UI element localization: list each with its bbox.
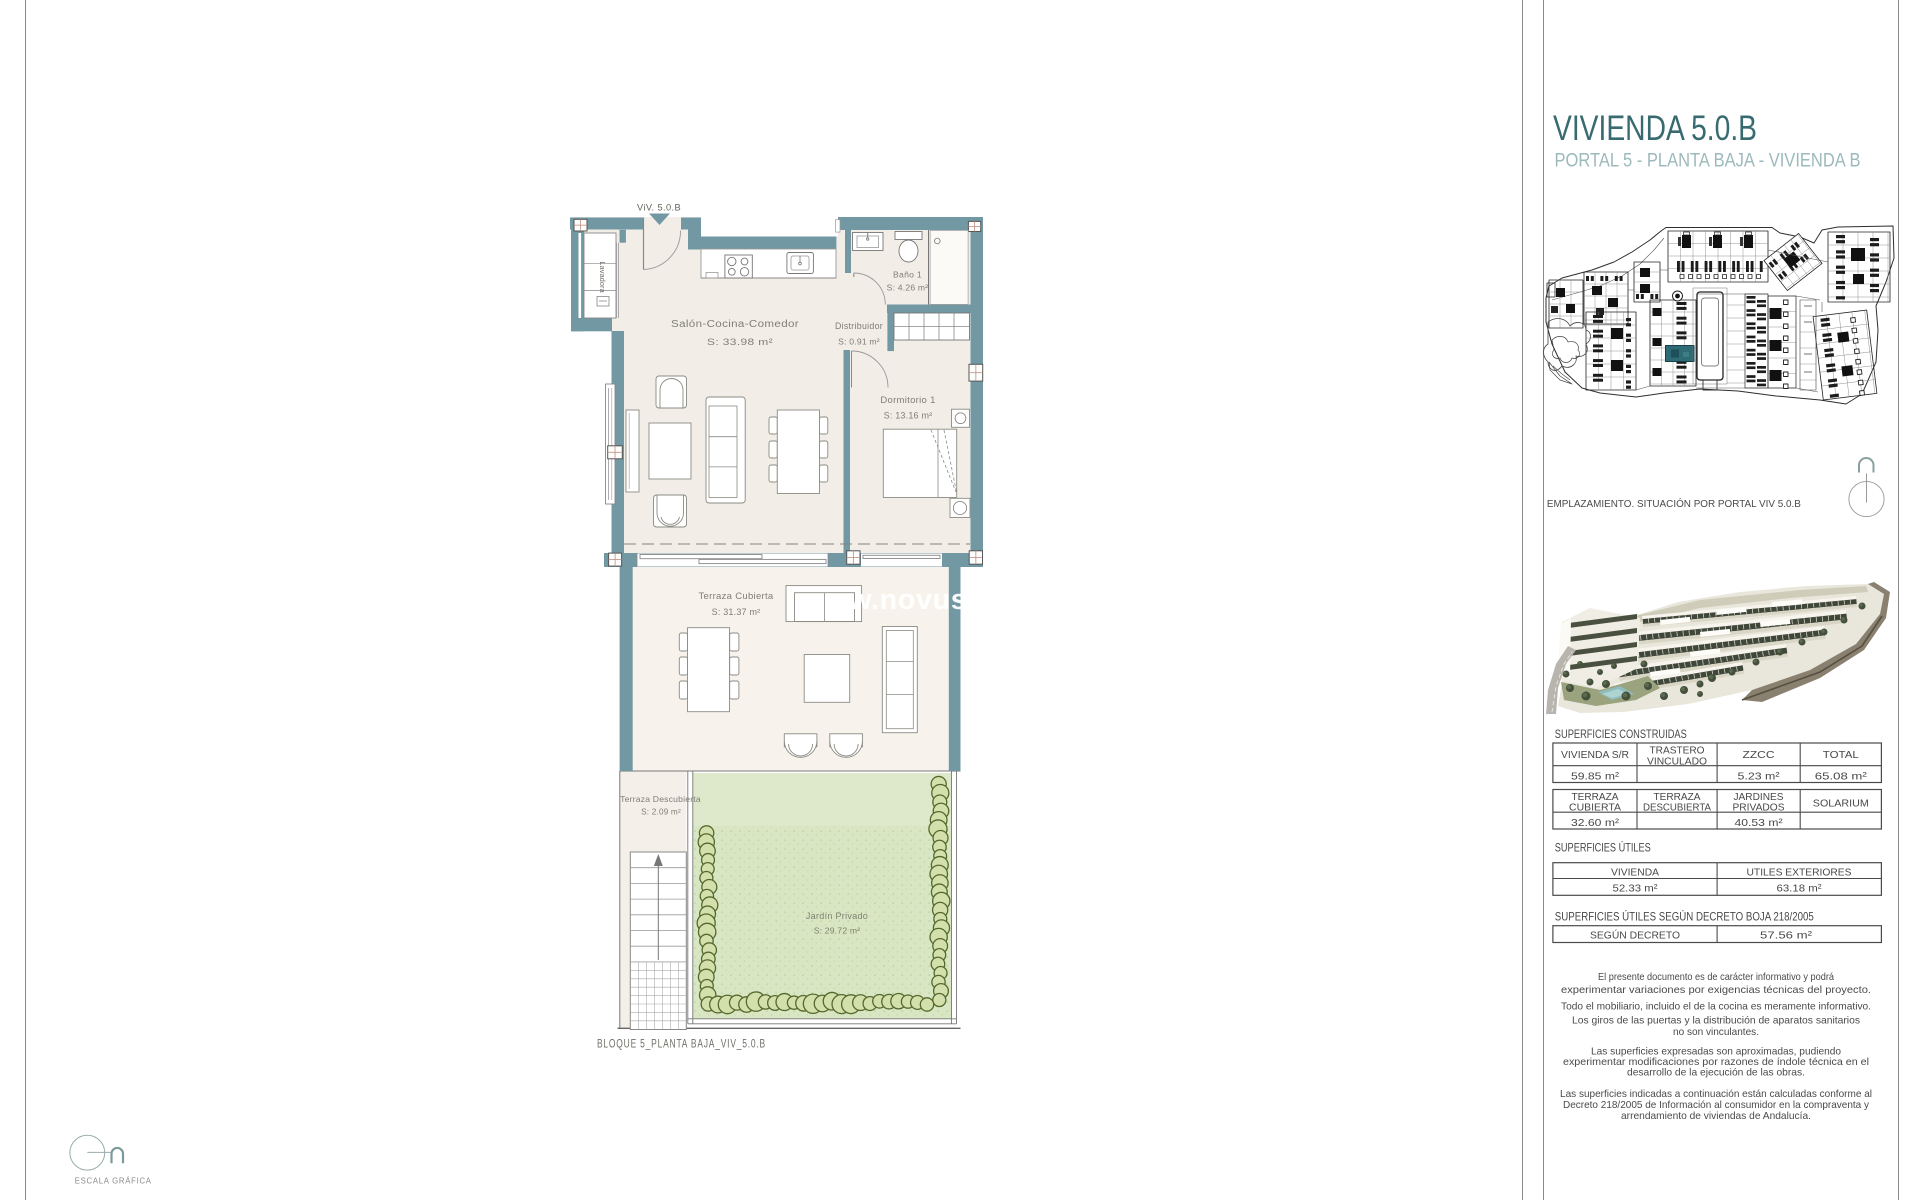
svg-text:Las superficies indicadas a co: Las superficies indicadas a continuación…: [1560, 1089, 1872, 1100]
svg-text:PORTAL 5 - PLANTA BAJA - VIVIE: PORTAL 5 - PLANTA BAJA - VIVIENDA B: [1555, 151, 1861, 172]
svg-text:59.85 m²: 59.85 m²: [1571, 771, 1620, 783]
svg-text:DESCUBIERTA: DESCUBIERTA: [1643, 802, 1711, 814]
svg-text:Terraza Cubierta: Terraza Cubierta: [698, 591, 773, 602]
svg-text:SEGÚN DECRETO: SEGÚN DECRETO: [1590, 929, 1680, 942]
svg-text:65.08 m²: 65.08 m²: [1815, 771, 1868, 783]
svg-text:experimentar variaciones por e: experimentar variaciones por exigencias …: [1561, 985, 1871, 996]
svg-text:Todo el mobiliario, incluido e: Todo el mobiliario, incluido el de la co…: [1561, 1002, 1871, 1013]
svg-text:ZZCC: ZZCC: [1743, 749, 1775, 761]
svg-text:Los giros de las puertas y la: Los giros de las puertas y la distribuci…: [1572, 1016, 1860, 1027]
svg-text:S: 4.26 m²: S: 4.26 m²: [887, 283, 929, 293]
svg-text:52.33 m²: 52.33 m²: [1613, 883, 1659, 895]
svg-text:VIVIENDA: VIVIENDA: [1611, 867, 1659, 879]
svg-text:S: 29.72 m²: S: 29.72 m²: [814, 926, 861, 936]
svg-text:5.23 m²: 5.23 m²: [1738, 771, 1781, 783]
svg-text:w.novus: w.novus: [848, 584, 967, 616]
svg-text:BLOQUE 5_PLANTA BAJA_VIV_5.0.B: BLOQUE 5_PLANTA BAJA_VIV_5.0.B: [597, 1039, 766, 1051]
svg-text:EMPLAZAMIENTO. SITUACIÓN POR P: EMPLAZAMIENTO. SITUACIÓN POR PORTAL VIV …: [1547, 497, 1801, 510]
svg-text:VINCULADO: VINCULADO: [1647, 756, 1707, 768]
svg-text:S: 31.37 m²: S: 31.37 m²: [712, 607, 761, 617]
svg-text:desarrollo de la ejecución de: desarrollo de la ejecución de las obras.: [1627, 1068, 1805, 1079]
svg-text:CUBIERTA: CUBIERTA: [1569, 802, 1621, 814]
svg-text:57.56 m²: 57.56 m²: [1760, 930, 1813, 942]
svg-text:Lavadora: Lavadora: [598, 261, 607, 293]
svg-text:40.53 m²: 40.53 m²: [1735, 817, 1784, 829]
svg-text:SOLARIUM: SOLARIUM: [1813, 798, 1869, 810]
svg-text:S: 2.09 m²: S: 2.09 m²: [641, 808, 681, 817]
svg-text:ESCALA GRÁFICA: ESCALA GRÁFICA: [75, 1176, 152, 1186]
svg-text:63.18 m²: 63.18 m²: [1777, 883, 1823, 895]
svg-text:S: 13.16 m²: S: 13.16 m²: [884, 411, 933, 421]
svg-text:VIVIENDA S/R: VIVIENDA S/R: [1561, 749, 1629, 761]
svg-text:Distribuidor: Distribuidor: [835, 321, 883, 331]
svg-text:SUPERFICIES CONSTRUIDAS: SUPERFICIES CONSTRUIDAS: [1555, 727, 1687, 741]
svg-text:El presente documento es de ca: El presente documento es de carácter inf…: [1598, 972, 1834, 983]
svg-text:S: 33.98 m²: S: 33.98 m²: [707, 337, 773, 348]
svg-text:S: 0.91 m²: S: 0.91 m²: [838, 337, 880, 347]
svg-text:Las superficies expresadas son: Las superficies expresadas son aproximad…: [1591, 1047, 1841, 1058]
svg-text:Terraza Descubierta: Terraza Descubierta: [620, 794, 701, 804]
svg-text:SUPERFICIES ÚTILES SEGÚN DECRE: SUPERFICIES ÚTILES SEGÚN DECRETO BOJA 21…: [1555, 909, 1814, 924]
svg-text:UTILES EXTERIORES: UTILES EXTERIORES: [1747, 867, 1852, 879]
svg-text:Salón-Cocina-Comedor: Salón-Cocina-Comedor: [671, 319, 799, 330]
svg-text:no son vinculantes.: no son vinculantes.: [1673, 1027, 1759, 1038]
svg-text:Decreto 218/2005 de Informaci: Decreto 218/2005 de Información al consu…: [1563, 1100, 1870, 1111]
svg-text:TOTAL: TOTAL: [1823, 749, 1859, 761]
svg-text:arrendamiento de viviendas de: arrendamiento de viviendas de Andalucía.: [1621, 1111, 1811, 1122]
svg-text:ViV. 5.0.B: ViV. 5.0.B: [637, 203, 681, 214]
svg-text:Jardín Privado: Jardín Privado: [806, 911, 868, 921]
svg-text:Baño 1: Baño 1: [893, 270, 922, 280]
svg-text:32.60 m²: 32.60 m²: [1571, 817, 1620, 829]
svg-text:SUPERFICIES ÚTILES: SUPERFICIES ÚTILES: [1555, 840, 1651, 855]
svg-text:experimentar modificaciones po: experimentar modificaciones por razones …: [1563, 1057, 1869, 1068]
svg-text:PRIVADOS: PRIVADOS: [1733, 802, 1785, 814]
svg-text:Dormitorio 1: Dormitorio 1: [880, 395, 935, 406]
svg-text:VIVIENDA 5.0.B: VIVIENDA 5.0.B: [1553, 109, 1757, 148]
